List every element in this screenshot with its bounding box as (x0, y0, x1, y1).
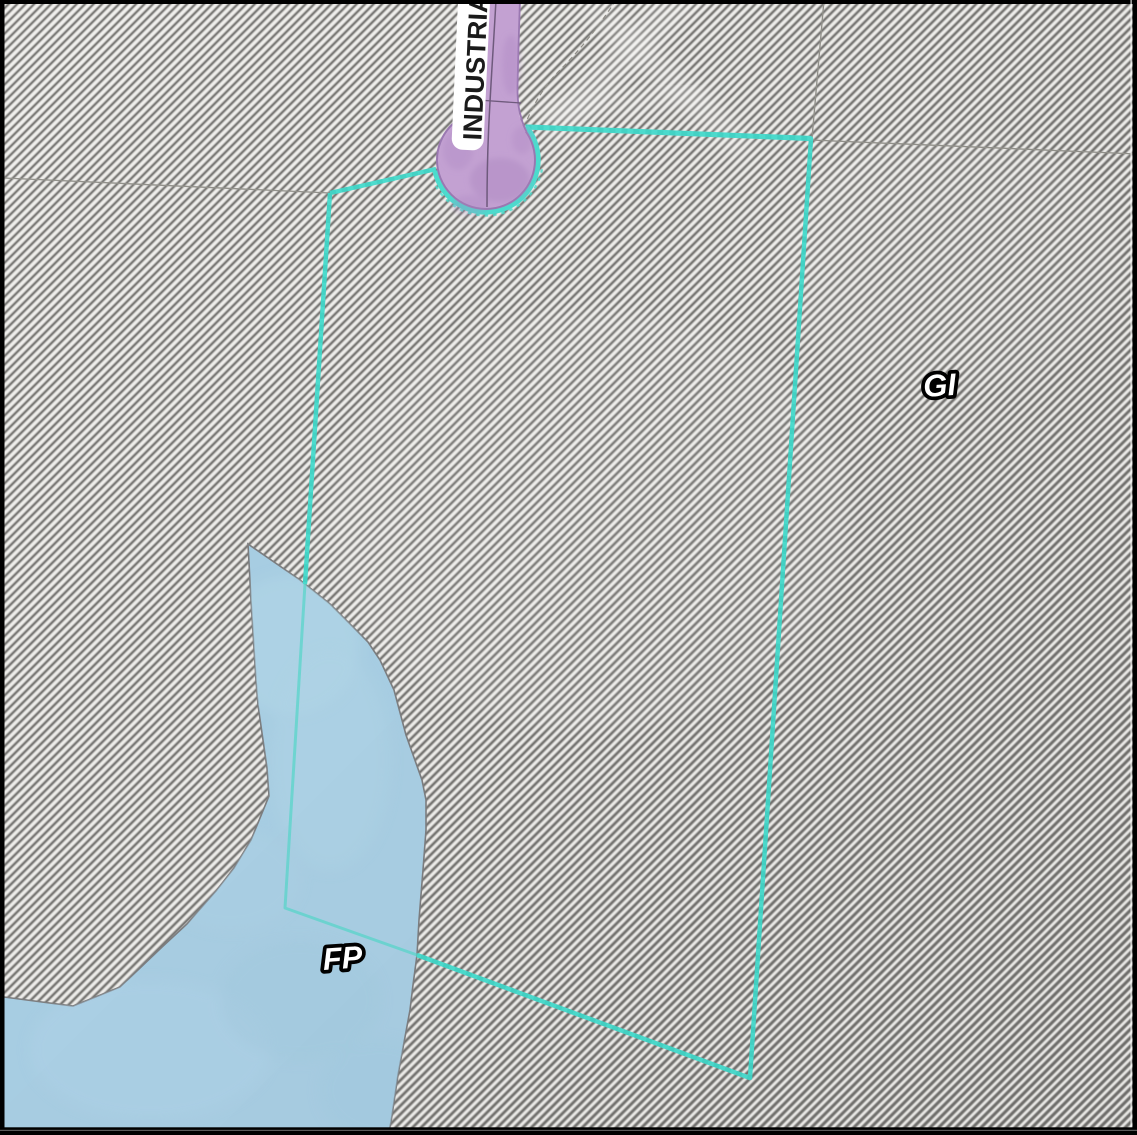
svg-text:FP: FP (322, 939, 364, 977)
svg-text:GI: GI (922, 367, 958, 404)
